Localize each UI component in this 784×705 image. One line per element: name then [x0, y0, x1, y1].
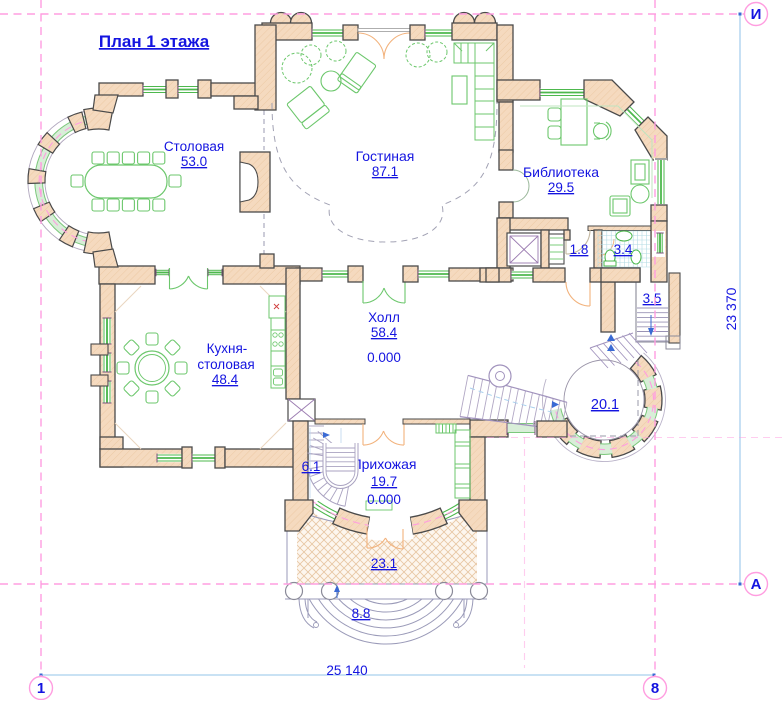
svg-text:23 370: 23 370: [723, 287, 739, 330]
svg-text:План 1 этажа: План 1 этажа: [99, 32, 210, 51]
svg-text:Библиотека: Библиотека: [523, 164, 599, 180]
svg-text:Гостиная: Гостиная: [356, 148, 415, 164]
svg-text:0.000: 0.000: [367, 350, 401, 365]
svg-text:20.1: 20.1: [591, 397, 619, 413]
svg-text:Столовая: Столовая: [164, 139, 224, 154]
svg-text:0.000: 0.000: [367, 492, 401, 507]
svg-text:3.5: 3.5: [643, 291, 662, 306]
svg-text:23.1: 23.1: [371, 556, 397, 571]
svg-text:53.0: 53.0: [181, 154, 207, 169]
svg-text:Кухня-: Кухня-: [207, 341, 248, 356]
svg-text:И: И: [751, 6, 762, 23]
svg-text:А: А: [751, 576, 762, 593]
svg-text:19.7: 19.7: [371, 474, 397, 489]
svg-text:58.4: 58.4: [371, 325, 398, 340]
svg-text:8: 8: [651, 680, 659, 697]
svg-text:Прихожая: Прихожая: [352, 456, 417, 472]
svg-text:29.5: 29.5: [548, 180, 574, 195]
svg-text:87.1: 87.1: [372, 164, 398, 179]
svg-text:25 140: 25 140: [326, 663, 367, 678]
svg-text:Холл: Холл: [368, 310, 400, 325]
svg-text:1: 1: [37, 680, 45, 697]
svg-text:столовая: столовая: [197, 357, 254, 372]
svg-text:6.1: 6.1: [302, 459, 321, 474]
svg-text:3.4: 3.4: [614, 242, 633, 257]
svg-text:1.8: 1.8: [570, 242, 589, 257]
svg-text:48.4: 48.4: [212, 372, 239, 387]
svg-text:8.8: 8.8: [352, 606, 371, 621]
